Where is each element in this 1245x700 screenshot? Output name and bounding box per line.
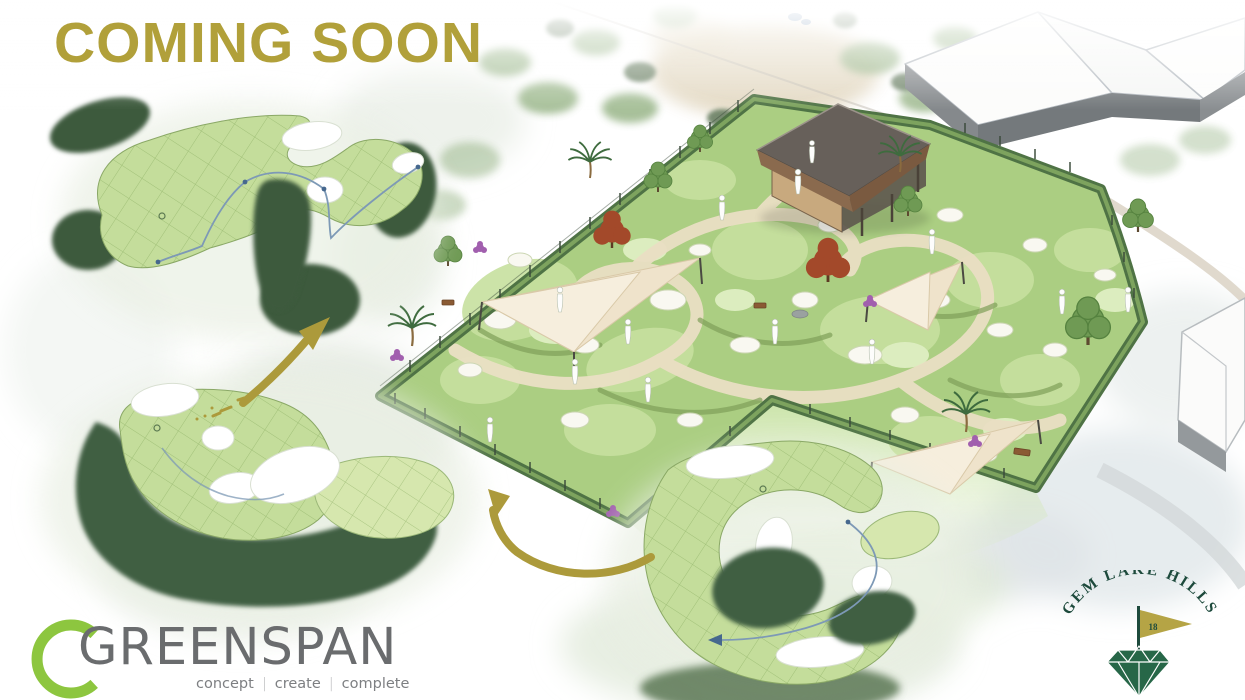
person-figure <box>487 417 493 442</box>
gem-lake-hills-logo: GEM LAKE HILLS 18 <box>1040 570 1240 700</box>
rocks <box>792 310 808 318</box>
coming-soon-title: COMING SOON <box>54 10 483 76</box>
person-figure <box>719 195 725 220</box>
palm-tree <box>568 142 611 178</box>
poster: COMING SOON GREENSPAN concept|create|com… <box>0 0 1245 700</box>
greenspan-logo: GREENSPAN concept|create|complete <box>20 612 420 700</box>
planter <box>754 303 766 308</box>
person-figure <box>1125 287 1131 312</box>
hole-detail-drawing-2 <box>40 370 480 630</box>
person-figure <box>625 319 631 344</box>
person-figure <box>645 377 651 402</box>
person-figure <box>869 339 875 364</box>
flag-icon: 18 <box>1137 606 1192 652</box>
planter <box>442 300 454 305</box>
flag-number: 18 <box>1149 622 1159 632</box>
person-figure <box>572 359 578 384</box>
person-figure <box>557 287 563 312</box>
gem-icon <box>1107 646 1170 697</box>
greenspan-tagline: concept|create|complete <box>196 676 409 692</box>
tagline-word: concept <box>196 676 254 692</box>
person-figure <box>929 229 935 254</box>
green-tree <box>1123 199 1154 232</box>
tagline-word: create <box>275 676 321 692</box>
flower-bush <box>473 241 487 253</box>
tagline-word: complete <box>342 676 410 692</box>
tagline-separator: | <box>321 676 342 692</box>
greenspan-name: GREENSPAN <box>78 618 397 677</box>
person-figure <box>795 169 801 194</box>
tagline-separator: | <box>254 676 275 692</box>
person-figure <box>809 140 814 162</box>
person-figure <box>1059 289 1065 314</box>
person-figure <box>772 319 778 344</box>
